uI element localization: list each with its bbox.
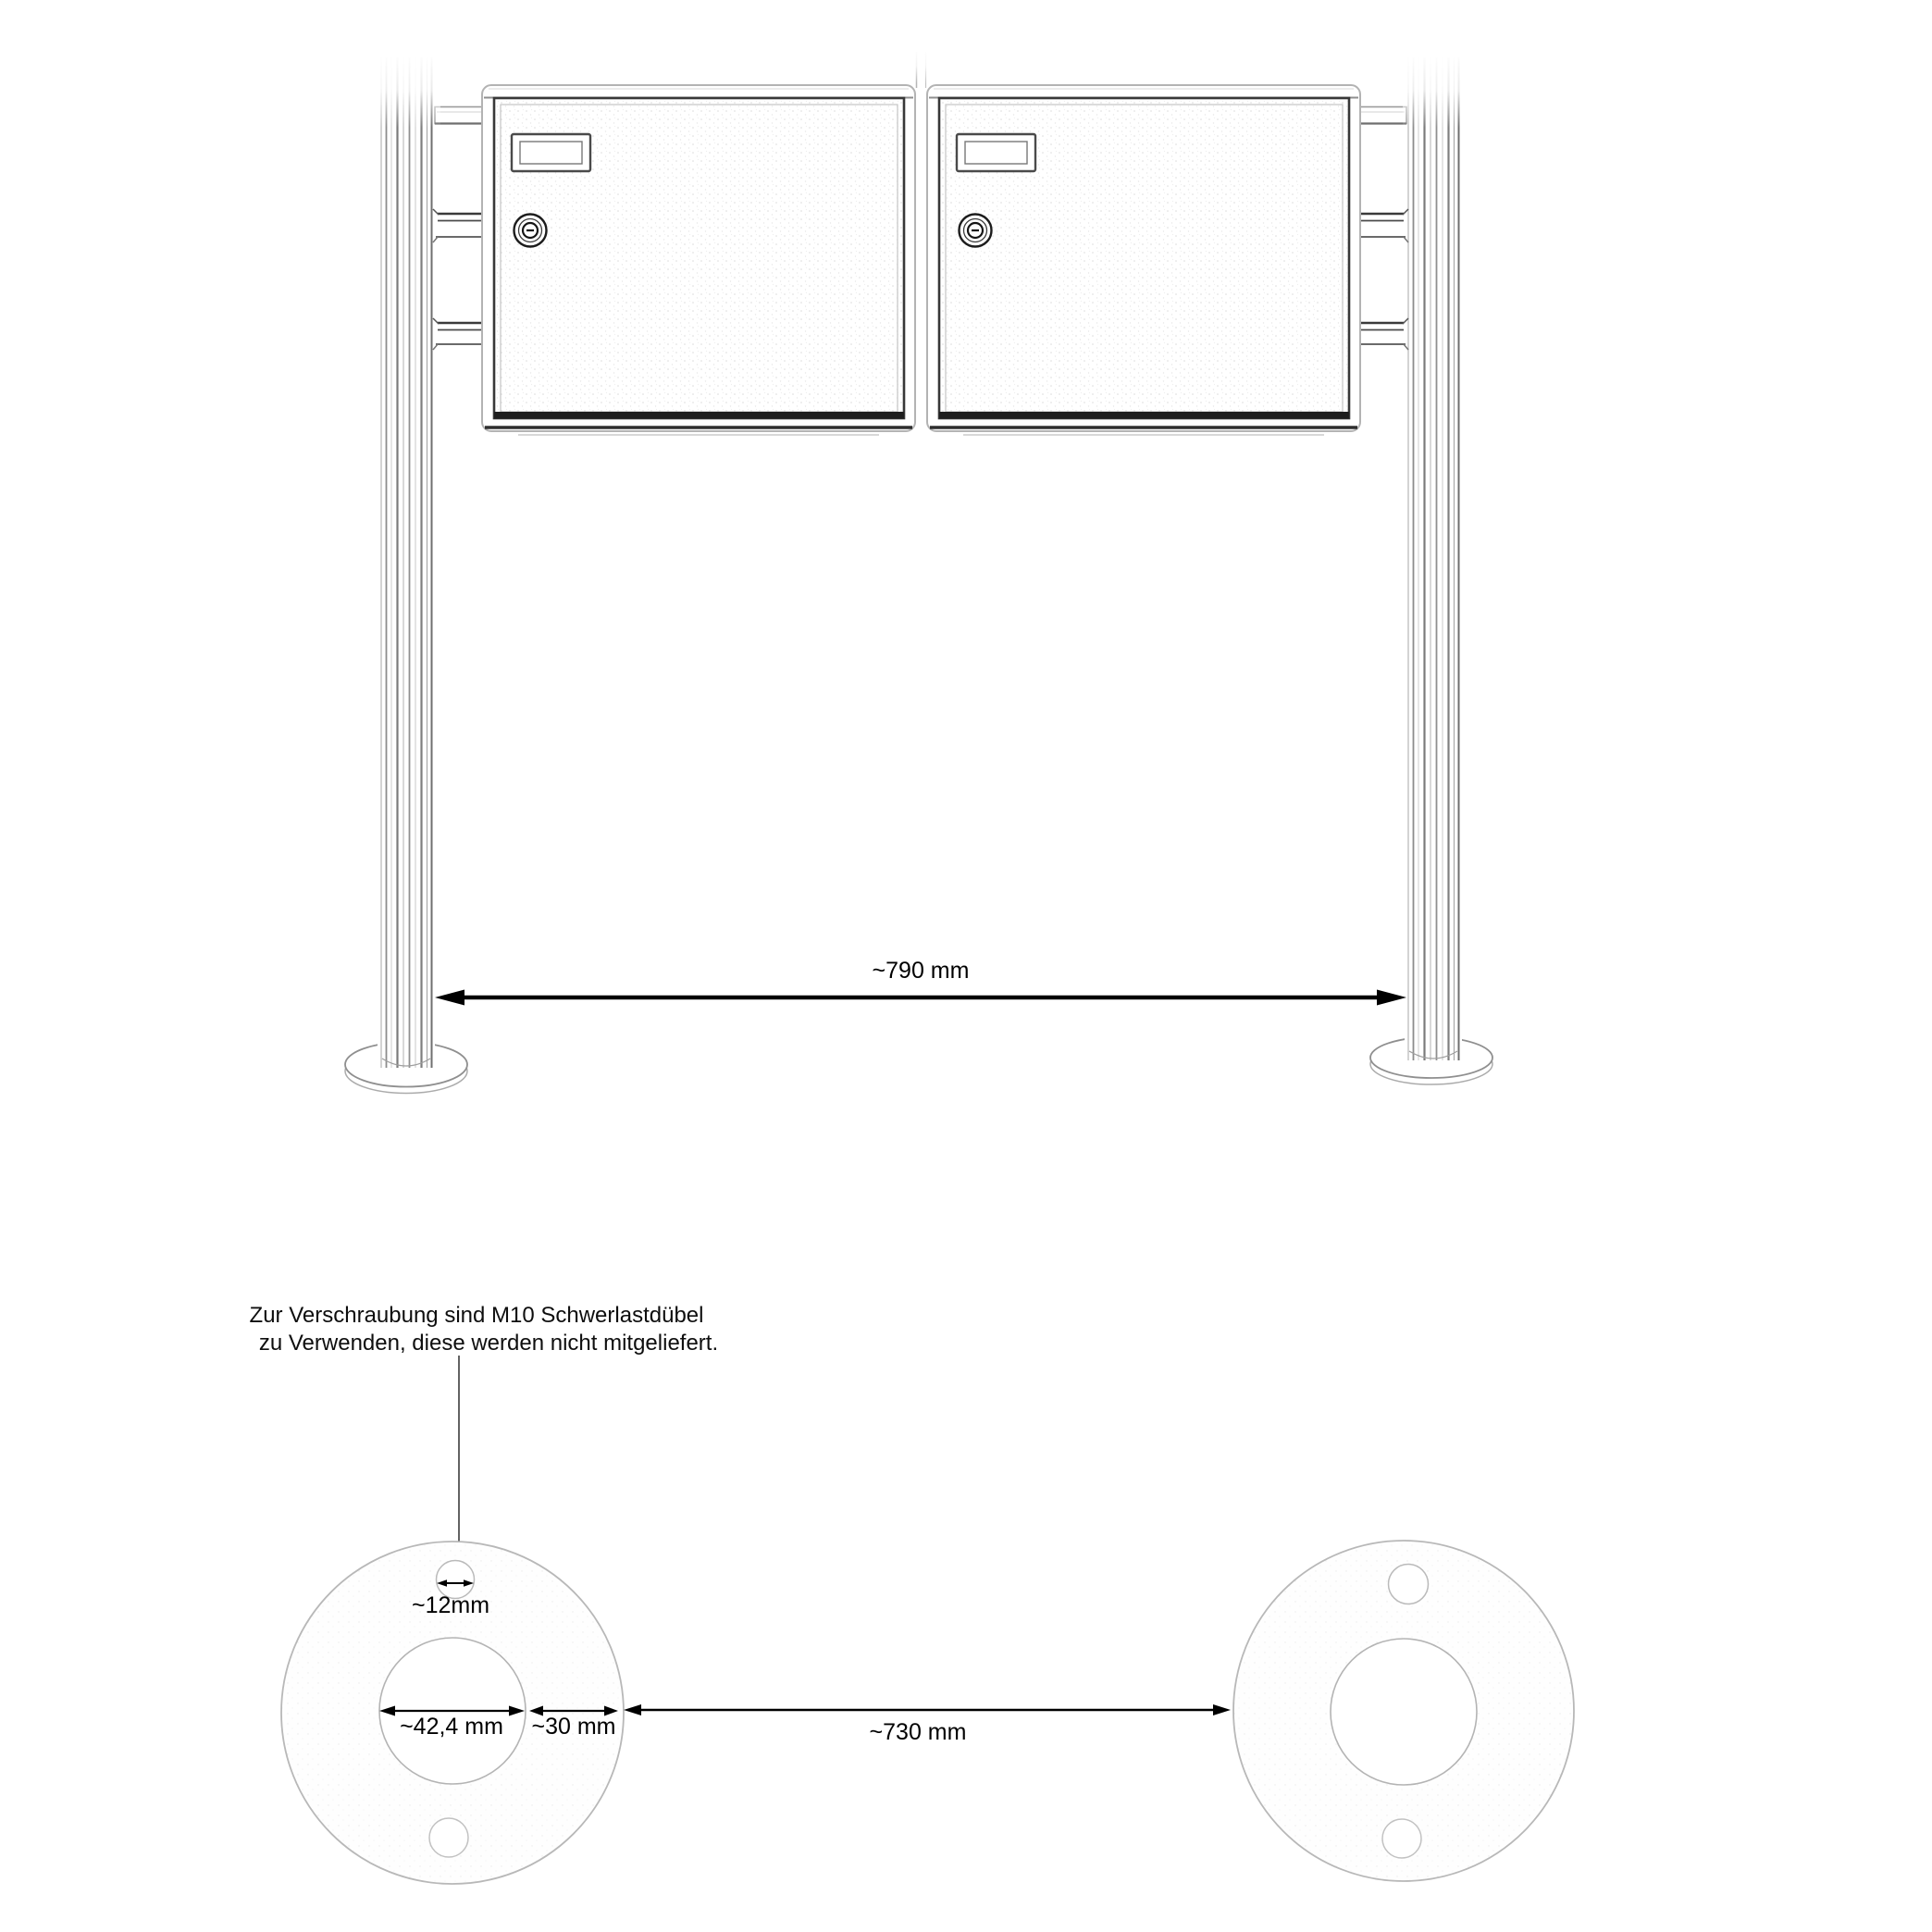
technical-drawing-page: ~790 mm Zur Verschraubung sind M10 Schwe… xyxy=(0,0,1932,1932)
left-post-top-fade xyxy=(374,54,440,128)
left-name-plate xyxy=(512,134,590,171)
post-distance-label: ~790 mm xyxy=(873,958,970,984)
left-door-bottom-edge xyxy=(494,412,904,419)
hole-diameter-label: ~12mm xyxy=(412,1592,489,1618)
right-lock-icon xyxy=(960,215,992,247)
right-post-top-fade xyxy=(1403,54,1469,128)
ring-width-label: ~30 mm xyxy=(531,1714,615,1740)
right-name-plate xyxy=(957,134,1035,171)
anchor-note-line1: Zur Verschraubung sind M10 Schwerlastdüb… xyxy=(250,1303,704,1328)
left-mailbox xyxy=(482,85,915,435)
inner-diameter-label: ~42,4 mm xyxy=(400,1714,503,1740)
ring-width-dimension: ~30 mm xyxy=(529,1706,618,1740)
left-lock-icon xyxy=(514,215,547,247)
mailbox-technical-drawing: ~790 mm Zur Verschraubung sind M10 Schwe… xyxy=(0,0,1932,1932)
right-mailbox xyxy=(927,85,1360,435)
right-flange-bore xyxy=(1331,1639,1477,1785)
right-door-bottom-edge xyxy=(939,412,1349,419)
flange-distance-label: ~730 mm xyxy=(870,1719,967,1745)
left-flange-bottom-hole xyxy=(429,1818,468,1857)
inner-diameter-dimension: ~42,4 mm xyxy=(379,1706,525,1740)
right-flange xyxy=(1233,1541,1574,1881)
anchor-note-line2: zu Verwenden, diese werden nicht mitgeli… xyxy=(259,1331,718,1356)
right-flange-bottom-hole xyxy=(1382,1819,1421,1858)
center-rail-top-fade xyxy=(909,48,935,83)
right-flange-top-hole xyxy=(1389,1565,1429,1604)
